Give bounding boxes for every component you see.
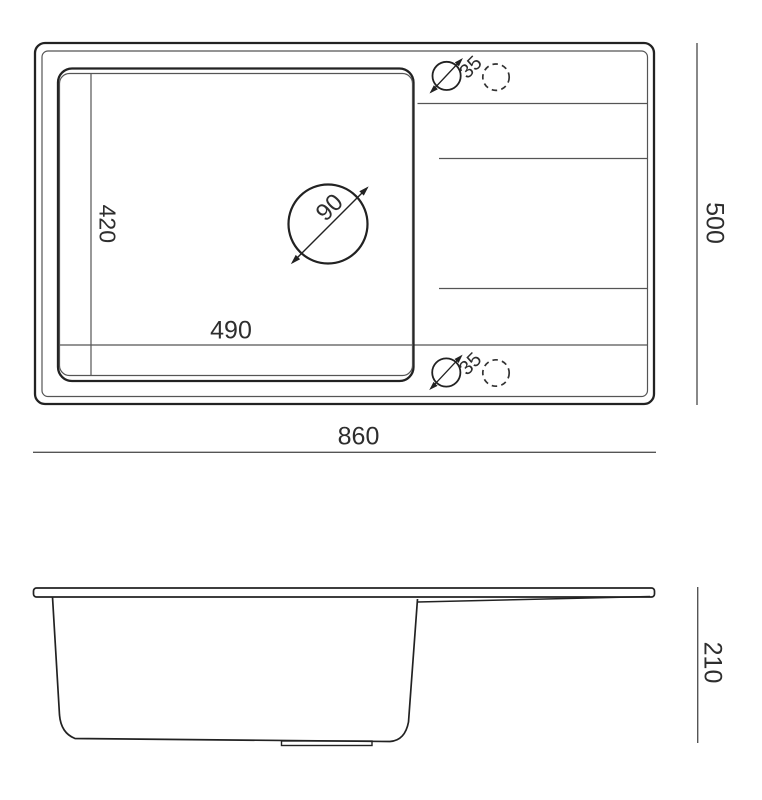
svg-text:210: 210	[698, 642, 726, 684]
svg-text:90: 90	[311, 189, 349, 227]
svg-text:490: 490	[210, 317, 252, 345]
svg-text:500: 500	[700, 202, 728, 244]
svg-text:860: 860	[338, 423, 380, 451]
svg-text:420: 420	[94, 205, 120, 243]
